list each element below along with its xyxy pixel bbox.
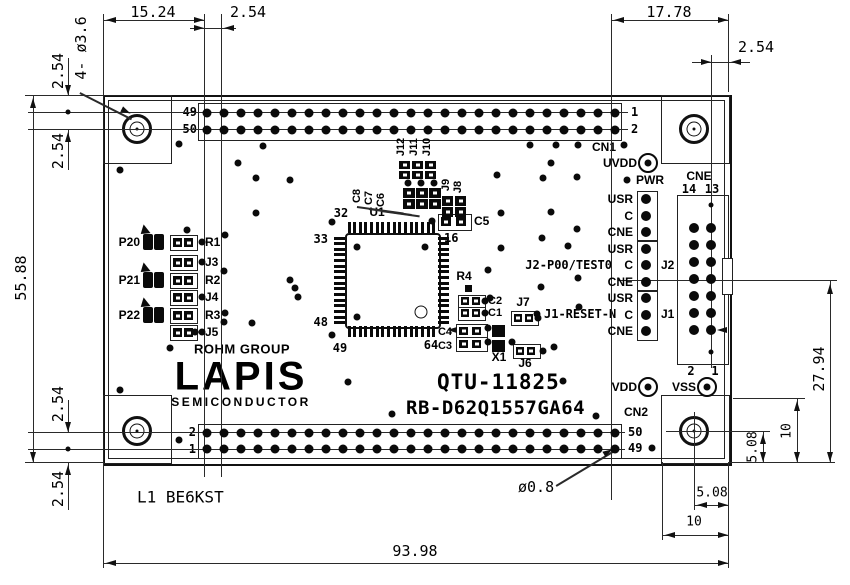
led [154, 272, 164, 288]
cne-pin [689, 308, 699, 318]
dim-2-54-top-right: 2.54 [738, 38, 774, 56]
pcb-mechanical-drawing: ROHM GROUP LAPIS SEMICONDUCTOR QTU-11825… [0, 0, 850, 585]
cn1-pin2-label: 2 [631, 122, 638, 136]
header-pin [390, 444, 399, 453]
u1-pin [398, 326, 401, 337]
arrowhead [662, 532, 675, 538]
c7-label: C7 [363, 191, 375, 205]
jumper-row-label: USR [608, 242, 633, 256]
via-dot [429, 218, 436, 225]
header-pin [237, 444, 246, 453]
pin-dia-callout: ø0.8 [518, 478, 554, 496]
via-dot [222, 232, 229, 239]
x1-crystal-pad [492, 325, 505, 337]
header-pin [424, 444, 433, 453]
u1-via [354, 244, 361, 251]
header-pin [220, 444, 229, 453]
via-dot [176, 141, 183, 148]
arrowhead [718, 532, 731, 538]
u1-pin [438, 276, 449, 279]
r4-label: R4 [456, 269, 471, 283]
cne-pin [689, 257, 699, 267]
port-label: P22 [119, 308, 140, 322]
arrowhead [103, 17, 116, 23]
header-pin [288, 108, 297, 117]
header-pin [492, 108, 501, 117]
header-pin [543, 125, 552, 134]
header-pin [203, 444, 212, 453]
u1-pin [404, 222, 407, 233]
header-pin [254, 108, 263, 117]
via-dot [548, 209, 555, 216]
u1-pin1-mark [415, 306, 428, 319]
smd-pad [514, 314, 522, 322]
arrowhead [718, 560, 731, 566]
cne-pin [689, 291, 699, 301]
arrowhead [760, 452, 766, 465]
arrowhead [611, 17, 624, 23]
header-pin [407, 444, 416, 453]
header-pin [322, 108, 331, 117]
header-pin [220, 125, 229, 134]
j11-label: J11 [408, 138, 420, 156]
jumper-row-label: CNE [608, 275, 633, 289]
dim-line [103, 20, 204, 21]
jumper-row-label: C [624, 258, 633, 272]
header-pin [356, 108, 365, 117]
pwr-label: PWR [636, 173, 664, 187]
header-pin [305, 125, 314, 134]
vss-label: VSS [672, 380, 696, 394]
header-pin [373, 444, 382, 453]
via-dot [295, 294, 302, 301]
header-pin [271, 428, 280, 437]
via-dot [222, 310, 229, 317]
jumper-row-label: USR [608, 192, 633, 206]
j8-9-pad [455, 196, 466, 206]
cne-pin [689, 240, 699, 250]
u1-pin [438, 242, 449, 245]
j1-label: J1 [661, 307, 674, 321]
smd-pad [184, 258, 193, 267]
jumper-pad [641, 310, 651, 320]
j10-12-pad [425, 171, 436, 179]
u1-pin [334, 248, 345, 251]
via-dot [621, 142, 628, 149]
header-pin [254, 125, 263, 134]
c6-8-pad [416, 188, 428, 198]
via-dot [649, 445, 656, 452]
ref-label: J5 [205, 325, 218, 339]
u1-pin [421, 326, 424, 337]
u1-pin [370, 326, 373, 337]
u1-pin [334, 304, 345, 307]
led [143, 272, 153, 288]
cn1-pin1-label: 1 [631, 105, 638, 119]
j7-label: J7 [516, 295, 529, 309]
u1-pin [381, 222, 384, 233]
u1-pin [438, 304, 449, 307]
jumper-row-label: CNE [608, 324, 633, 338]
arrowhead [701, 59, 714, 65]
header-pin [322, 428, 331, 437]
smd-pad [173, 311, 182, 320]
j10-12-pad [412, 161, 423, 169]
via-dot [485, 339, 492, 346]
uvdd-pad [638, 153, 658, 173]
smd-pad [173, 293, 182, 302]
j12-label: J12 [395, 138, 407, 156]
header-pin [288, 428, 297, 437]
u1-pin [370, 222, 373, 233]
u1-pin [432, 326, 435, 337]
cne-pin [689, 223, 699, 233]
via-dot [192, 329, 199, 336]
arrowhead [694, 502, 707, 508]
smd-pad [184, 238, 193, 247]
header-pin [509, 428, 518, 437]
smd-pad [472, 309, 480, 317]
smd-pad [173, 328, 182, 337]
header-pin [373, 428, 382, 437]
dim-line [221, 14, 222, 477]
u1-pin [334, 293, 345, 296]
smd-pad [184, 311, 193, 320]
header-pin [390, 108, 399, 117]
smd-pad [184, 276, 193, 285]
via-dot [574, 226, 581, 233]
u1-pin [393, 222, 396, 233]
dim-2-54-left-d: 2.54 [49, 471, 67, 507]
x1-label: X1 [492, 350, 507, 364]
header-pin [407, 428, 416, 437]
smd-pad [461, 309, 469, 317]
header-pin [322, 125, 331, 134]
ref-label: J3 [205, 255, 218, 269]
header-pin [441, 428, 450, 437]
header-pin [271, 108, 280, 117]
header-pin [543, 108, 552, 117]
dim-5-08-right: 5.08 [746, 431, 761, 462]
cne-pin [689, 274, 699, 284]
via-dot [574, 174, 581, 181]
cne-pin [706, 274, 716, 284]
u1-pin [364, 326, 367, 337]
header-pin [611, 108, 620, 117]
arrowhead [760, 431, 766, 444]
via-dot [221, 319, 228, 326]
u1-pin [334, 265, 345, 268]
j10-12-pad [412, 171, 423, 179]
header-pin [543, 444, 552, 453]
header-pin [441, 444, 450, 453]
board-model: RB-D62Q1557GA64 [406, 397, 585, 419]
smd-pad [527, 347, 535, 355]
hole-callout: 4- ø3.6 [72, 16, 90, 79]
header-pin [560, 108, 569, 117]
header-pin [441, 108, 450, 117]
port-label: P20 [119, 235, 140, 249]
u1-pin [387, 222, 390, 233]
u1-pin [334, 287, 345, 290]
smd-pad [184, 293, 193, 302]
dim-2-54-left-c: 2.54 [49, 386, 67, 422]
u1-pin [334, 270, 345, 273]
vdd-label: VDD [612, 380, 637, 394]
dim-line [103, 563, 728, 564]
cne-mark [709, 203, 714, 208]
r4-pad [465, 285, 472, 292]
u1-pin [438, 282, 449, 285]
header-pin [424, 108, 433, 117]
board-part-no: QTU-11825 [437, 370, 560, 394]
cne-pin [706, 291, 716, 301]
header-pin [509, 444, 518, 453]
via-dot [292, 285, 299, 292]
via-dot [199, 294, 206, 301]
u1-via [422, 244, 429, 251]
header-pin [458, 428, 467, 437]
header-pin [237, 428, 246, 437]
via-dot [527, 142, 534, 149]
via-dot [494, 172, 501, 179]
via-dot [329, 332, 336, 339]
jumper-pad [641, 260, 651, 270]
c6-8-pad [403, 188, 415, 198]
cn1-label: CN1 [592, 140, 616, 154]
u1-pin [438, 265, 449, 268]
u1-pin48-label: 48 [314, 315, 328, 329]
dim-27-94: 27.94 [810, 346, 828, 391]
header-pin [339, 428, 348, 437]
j10-12-pad [425, 161, 436, 169]
arrowhead [30, 95, 36, 108]
via-dot [329, 219, 336, 226]
cne-pin [689, 325, 699, 335]
via-dot [482, 310, 489, 317]
via-dot [498, 210, 505, 217]
smd-pad [459, 327, 468, 335]
dim-line [662, 462, 663, 540]
arrowhead [221, 25, 234, 31]
header-pin [237, 125, 246, 134]
u1-pin [438, 237, 449, 240]
c5-label: C5 [474, 214, 489, 228]
via-dot [534, 311, 541, 318]
vss-pad [697, 377, 717, 397]
arrowhead [194, 17, 207, 23]
arrowhead [65, 129, 71, 142]
dim-line [33, 95, 34, 462]
arrowhead [65, 462, 71, 475]
header-pin [492, 125, 501, 134]
header-pin [475, 444, 484, 453]
header-pin [526, 108, 535, 117]
via-dot [509, 339, 516, 346]
via-dot [221, 268, 228, 275]
u1-pin [334, 237, 345, 240]
j6-label: J6 [518, 356, 531, 370]
via-dot [235, 160, 242, 167]
ref-label: R2 [205, 273, 220, 287]
jumper-row-label: C [624, 209, 633, 223]
via-dot [560, 378, 567, 385]
via-dot [553, 142, 560, 149]
u1-pin [438, 316, 449, 319]
dim-line [611, 14, 612, 500]
c6-8-pad [403, 199, 415, 209]
via-dot [485, 267, 492, 274]
header-pin [407, 125, 416, 134]
u1-pin [438, 287, 449, 290]
logo-lapis: LAPIS [175, 355, 308, 400]
header-pin [475, 125, 484, 134]
u1-pin [421, 222, 424, 233]
via-dot [485, 325, 492, 332]
header-pin [509, 125, 518, 134]
dim-line [728, 14, 729, 92]
smd-pad [525, 314, 533, 322]
u1-pin [334, 310, 345, 313]
jumper-row-label: CNE [608, 225, 633, 239]
dim-line [728, 462, 729, 568]
via-dot [575, 142, 582, 149]
u1-pin [393, 326, 396, 337]
arrowhead [103, 560, 116, 566]
u1-pin [376, 326, 379, 337]
u1-pin [334, 282, 345, 285]
dim-line [103, 462, 104, 568]
u1-pin32-label: 32 [334, 206, 348, 220]
header-pin [373, 125, 382, 134]
u1-pin [359, 326, 362, 337]
via-dot [538, 284, 545, 291]
header-pin [407, 108, 416, 117]
u1-pin [364, 222, 367, 233]
via-dot [482, 298, 489, 305]
header-pin [611, 428, 620, 437]
header-pin [492, 428, 501, 437]
via-dot [199, 329, 206, 336]
header-pin [339, 108, 348, 117]
u1-pin [334, 321, 345, 324]
header-pin [203, 428, 212, 437]
ref-label: J4 [205, 290, 218, 304]
via-dot [260, 143, 267, 150]
u1-pin [438, 248, 449, 251]
dim-line [694, 412, 695, 510]
u1-pin [438, 299, 449, 302]
cn2-pin49-label: 49 [628, 441, 642, 455]
j8-9-pad [455, 207, 466, 217]
u1-pin49-label: 49 [333, 341, 347, 355]
smd-pad [472, 340, 481, 348]
dim-line [666, 431, 770, 432]
u1-pin [438, 310, 449, 313]
led [143, 307, 153, 323]
cne-mark [709, 350, 714, 355]
u1-pin [387, 326, 390, 337]
via-dot [253, 210, 260, 217]
c3-label: C3 [438, 340, 452, 352]
dim-93-98: 93.98 [392, 542, 437, 560]
dim-2-54-top-left: 2.54 [230, 3, 266, 21]
u1-pin [398, 222, 401, 233]
arrowhead [794, 452, 800, 465]
arrowhead [718, 502, 731, 508]
dim-line [103, 14, 104, 95]
j10-label: J10 [421, 138, 433, 156]
via-dot [593, 413, 600, 420]
header-pin [526, 428, 535, 437]
dim-2-54-left-a: 2.54 [49, 53, 67, 89]
header-pin [526, 444, 535, 453]
smd-pad [173, 238, 182, 247]
via-dot [167, 345, 174, 352]
j2-signal-note: J2-P00/TEST0 [525, 258, 612, 272]
header-pin [390, 125, 399, 134]
cne-pin14-label: 14 [682, 182, 696, 196]
header-pin [492, 444, 501, 453]
j8-9-pad [442, 207, 453, 217]
jumper-pad [641, 227, 651, 237]
header-pin [322, 444, 331, 453]
u1-pin [359, 222, 362, 233]
dim-dot [66, 447, 71, 452]
port-label: P21 [119, 273, 140, 287]
dim-55-88: 55.88 [12, 255, 30, 300]
u1-pin [438, 253, 449, 256]
u1-pin [438, 321, 449, 324]
u1-pin [334, 253, 345, 256]
smd-pad [441, 217, 451, 226]
led [143, 234, 153, 250]
via-dot [576, 304, 583, 311]
via-dot [431, 180, 438, 187]
cne-pin [706, 223, 716, 233]
header-pin [594, 108, 603, 117]
dim-line [728, 462, 835, 463]
jumper-pad [641, 293, 651, 303]
via-dot [117, 167, 124, 174]
arrowhead [718, 17, 731, 23]
header-pin [288, 444, 297, 453]
dim-17-78: 17.78 [646, 3, 691, 21]
arrowhead [65, 85, 71, 98]
u1-pin [348, 326, 351, 337]
logo-semiconductor: SEMICONDUCTOR [171, 395, 311, 409]
c6-8-pad [429, 199, 441, 209]
jumper-row-label: C [624, 308, 633, 322]
smd-pad [516, 347, 524, 355]
header-pin [254, 428, 263, 437]
header-pin [611, 125, 620, 134]
via-dot [540, 348, 547, 355]
smd-pad [459, 340, 468, 348]
vdd-pad [638, 377, 658, 397]
header-pin [356, 444, 365, 453]
header-pin [339, 444, 348, 453]
cne-pin [706, 308, 716, 318]
header-pin [543, 428, 552, 437]
dim-line [711, 55, 712, 368]
via-dot [184, 227, 191, 234]
c6-8-pad [429, 188, 441, 198]
drawing-note: L1 BE6KST [137, 488, 224, 507]
via-dot [498, 245, 505, 252]
u1-pin33-label: 33 [314, 232, 328, 246]
via-dot [287, 177, 294, 184]
